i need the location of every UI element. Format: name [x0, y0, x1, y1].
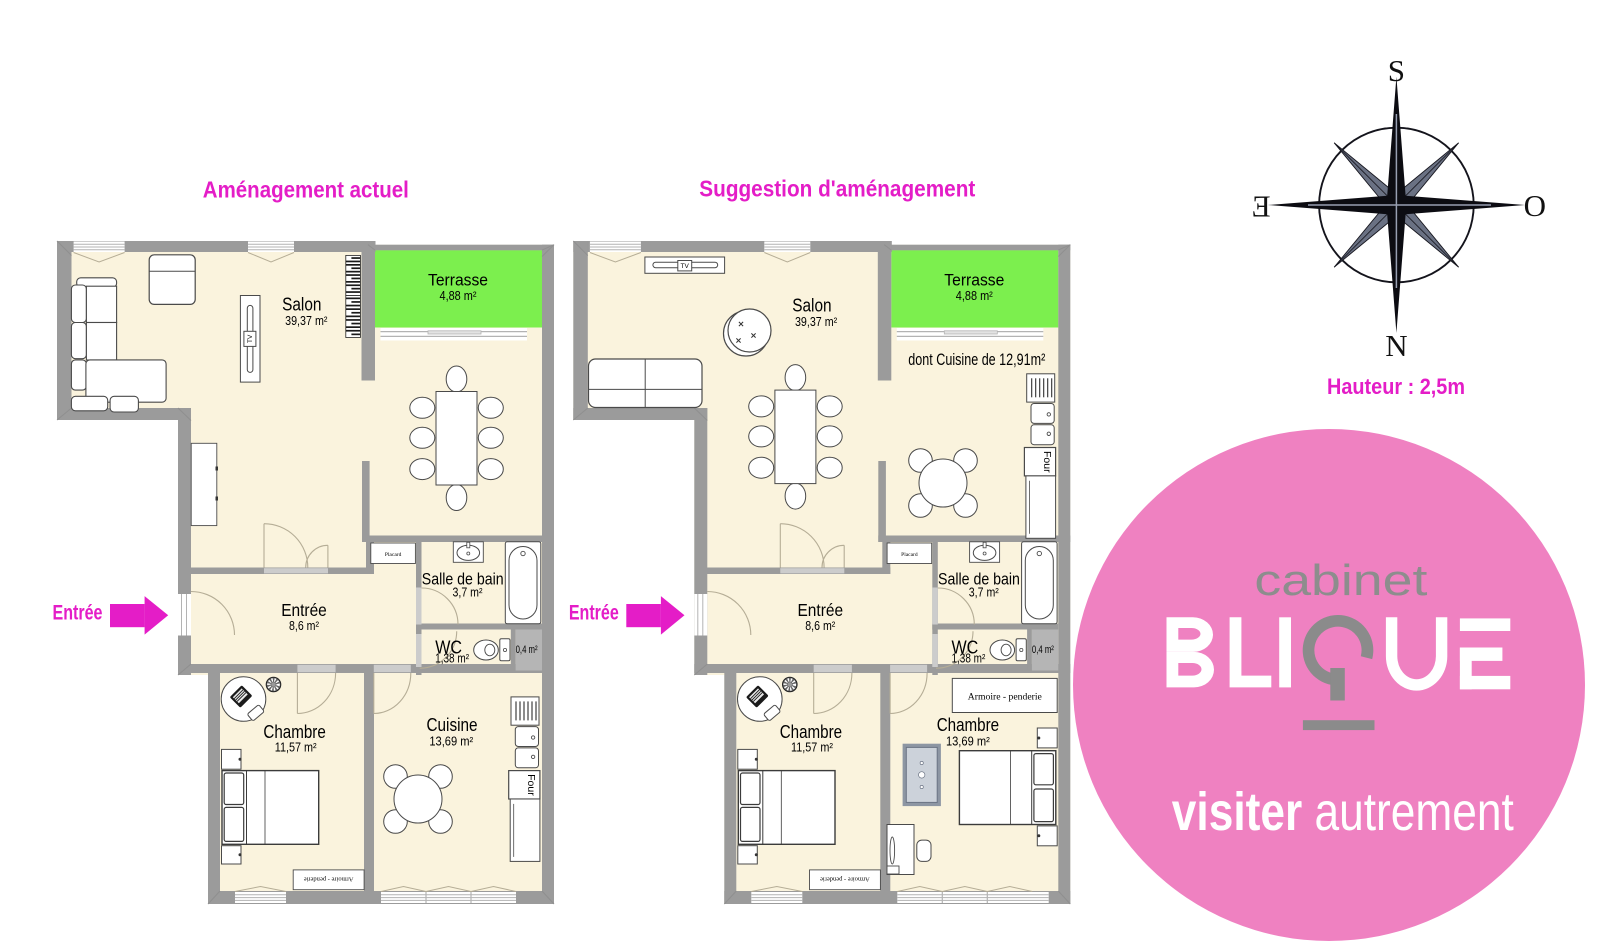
svg-text:Salon: Salon: [282, 295, 321, 315]
svg-text:8,6 m²: 8,6 m²: [805, 619, 835, 633]
svg-text:S: S: [1388, 53, 1405, 88]
svg-text:Chambre: Chambre: [263, 722, 325, 742]
svg-text:13,69 m²: 13,69 m²: [429, 734, 473, 749]
svg-text:Hauteur : 2,5m: Hauteur : 2,5m: [1327, 374, 1465, 399]
svg-text:dont Cuisine de 12,91m²: dont Cuisine de 12,91m²: [908, 351, 1045, 369]
svg-text:N: N: [1385, 328, 1407, 363]
svg-text:Terrasse: Terrasse: [944, 272, 1004, 290]
svg-text:TV: TV: [247, 334, 254, 343]
svg-text:1,38 m²: 1,38 m²: [951, 652, 985, 666]
svg-text:11,57 m²: 11,57 m²: [791, 741, 833, 755]
svg-text:Armoire - penderie: Armoire - penderie: [820, 876, 870, 883]
svg-text:39,37 m²: 39,37 m²: [795, 314, 838, 329]
svg-text:Entrée: Entrée: [53, 601, 103, 624]
svg-text:3,7 m²: 3,7 m²: [453, 586, 483, 600]
svg-text:0,4 m²: 0,4 m²: [516, 644, 538, 656]
svg-text:8,6 m²: 8,6 m²: [289, 619, 319, 633]
svg-text:Terrasse: Terrasse: [428, 272, 488, 290]
svg-text:Chambre: Chambre: [937, 715, 999, 735]
svg-text:Entrée: Entrée: [569, 601, 619, 624]
svg-text:Entrée: Entrée: [281, 600, 327, 620]
svg-text:TV: TV: [681, 263, 690, 270]
svg-text:4,88 m²: 4,88 m²: [440, 289, 477, 303]
svg-text:13,69 m²: 13,69 m²: [946, 733, 990, 748]
svg-text:4,88 m²: 4,88 m²: [956, 289, 993, 303]
svg-text:0,4 m²: 0,4 m²: [1032, 644, 1054, 656]
svg-text:11,57 m²: 11,57 m²: [275, 741, 317, 755]
svg-text:E: E: [1252, 189, 1271, 224]
svg-text:1,38 m²: 1,38 m²: [435, 652, 469, 666]
svg-text:39,37 m²: 39,37 m²: [285, 313, 328, 328]
svg-text:Placard: Placard: [901, 552, 918, 558]
svg-text:cabinet: cabinet: [1254, 556, 1427, 605]
svg-text:Placard: Placard: [385, 552, 402, 558]
svg-text:Armoire - penderie: Armoire - penderie: [304, 876, 354, 883]
svg-text:Cuisine: Cuisine: [427, 715, 478, 735]
svg-text:Armoire - penderie: Armoire - penderie: [968, 693, 1042, 703]
svg-text:Chambre: Chambre: [780, 722, 842, 742]
svg-text:Aménagement actuel: Aménagement actuel: [203, 177, 409, 203]
svg-text:O: O: [1524, 188, 1546, 223]
svg-text:3,7 m²: 3,7 m²: [969, 586, 999, 600]
svg-text:visiter autrement: visiter autrement: [1172, 782, 1514, 842]
svg-text:Suggestion d'aménagement: Suggestion d'aménagement: [699, 176, 975, 202]
svg-text:Entrée: Entrée: [798, 600, 844, 620]
svg-text:Salon: Salon: [792, 296, 831, 316]
